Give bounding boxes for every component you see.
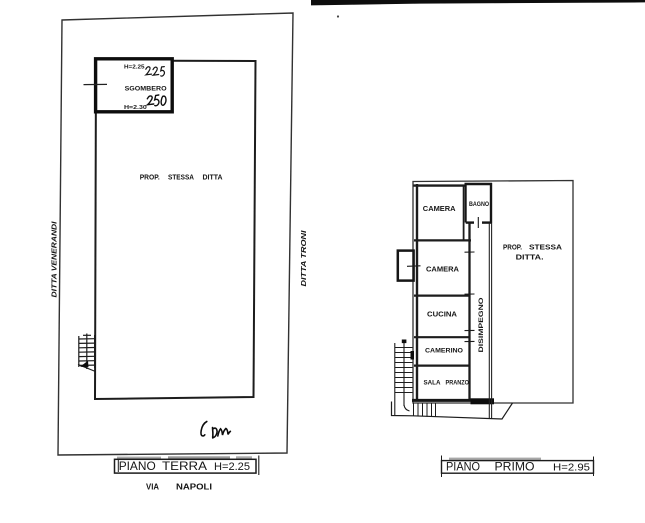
svg-text:DITTA.: DITTA. xyxy=(516,254,544,261)
svg-text:BAGNO: BAGNO xyxy=(469,201,489,208)
svg-text:H=2.25: H=2.25 xyxy=(124,64,145,70)
svg-text:H=2.95: H=2.95 xyxy=(553,462,590,474)
svg-text:CAMERA: CAMERA xyxy=(423,206,456,213)
svg-text:VIA: VIA xyxy=(146,482,159,491)
svg-text:DITTA VENERANDI: DITTA VENERANDI xyxy=(50,220,59,297)
svg-text:PRIMO: PRIMO xyxy=(495,462,535,474)
svg-text:CUCINA: CUCINA xyxy=(427,312,457,319)
svg-text:PROP.: PROP. xyxy=(503,244,522,251)
svg-text:DITTA: DITTA xyxy=(203,173,224,182)
svg-text:PROP.: PROP. xyxy=(140,173,160,182)
svg-text:STESSA: STESSA xyxy=(168,173,195,182)
svg-text:H=2.30: H=2.30 xyxy=(124,105,147,111)
svg-text:PRANZO: PRANZO xyxy=(446,380,470,387)
svg-text:CAMERINO: CAMERINO xyxy=(425,348,463,355)
svg-text:SGOMBERO: SGOMBERO xyxy=(125,85,167,92)
svg-text:SALA: SALA xyxy=(424,380,441,387)
svg-text:PIANO: PIANO xyxy=(119,459,156,473)
svg-text:STESSA: STESSA xyxy=(529,244,562,251)
svg-text:DITTA TRONI: DITTA TRONI xyxy=(299,229,308,286)
svg-text:NAPOLI: NAPOLI xyxy=(176,482,212,491)
svg-text:CAMERA: CAMERA xyxy=(426,267,459,274)
svg-text:TERRA: TERRA xyxy=(162,459,207,473)
svg-text:DISIMPEGNO: DISIMPEGNO xyxy=(479,297,485,352)
svg-text:PIANO: PIANO xyxy=(446,462,480,474)
svg-text:H=2.25: H=2.25 xyxy=(214,461,250,473)
